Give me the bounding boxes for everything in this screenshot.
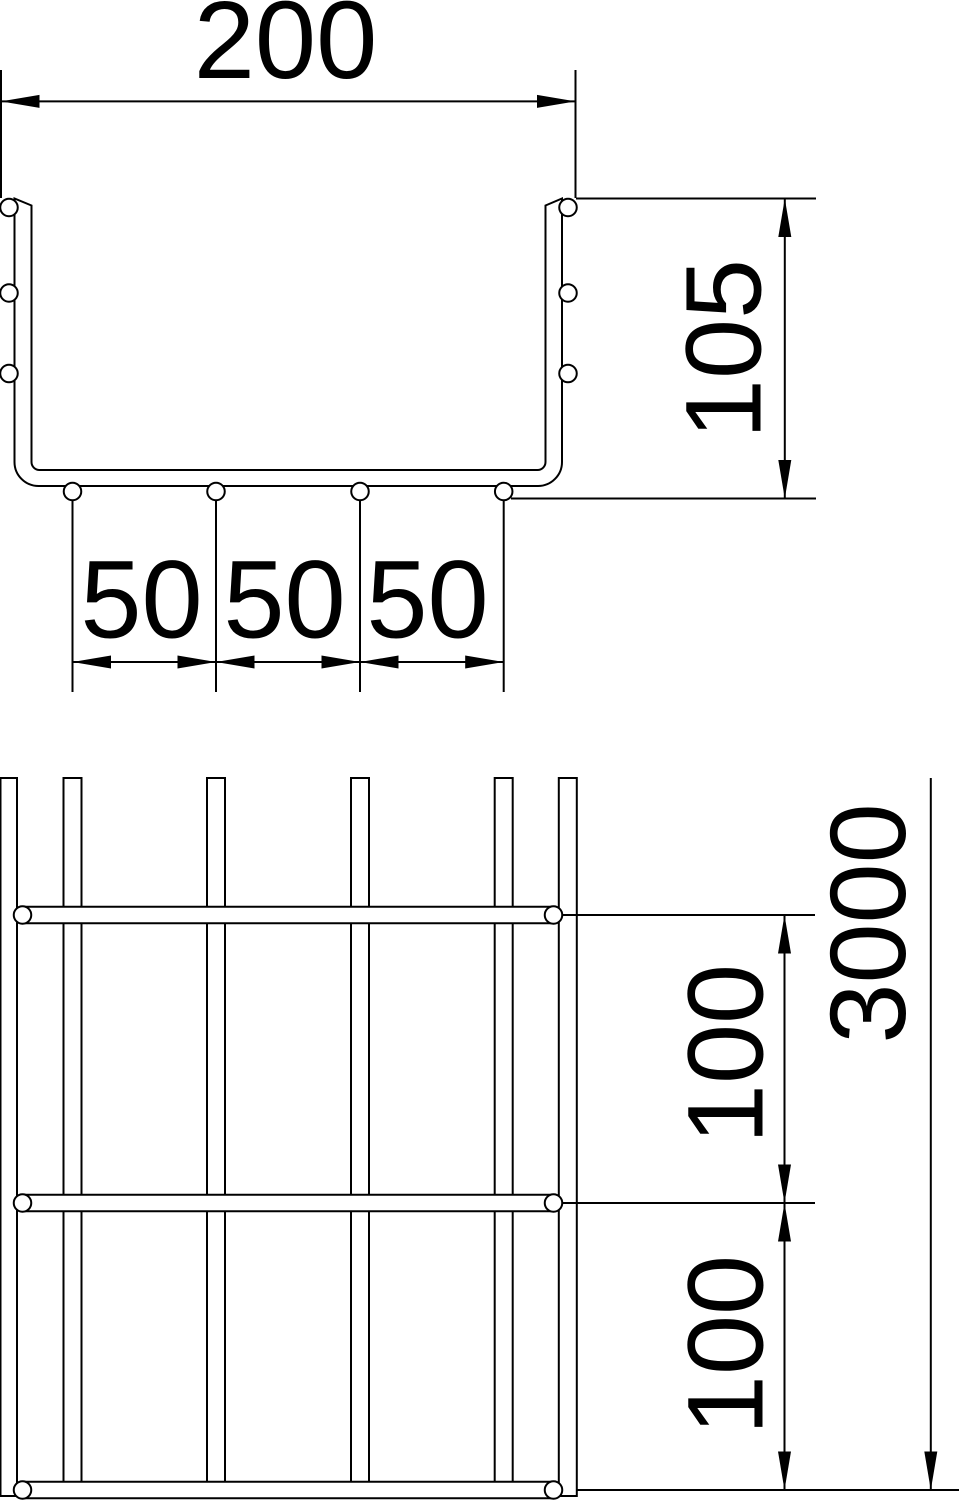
svg-text:200: 200 (194, 0, 378, 102)
svg-text:50: 50 (366, 539, 488, 662)
svg-text:50: 50 (80, 539, 202, 662)
svg-text:100: 100 (665, 964, 786, 1144)
svg-text:3000: 3000 (807, 803, 928, 1043)
svg-text:105: 105 (663, 259, 784, 439)
svg-text:50: 50 (223, 539, 345, 662)
svg-text:100: 100 (665, 1255, 786, 1435)
